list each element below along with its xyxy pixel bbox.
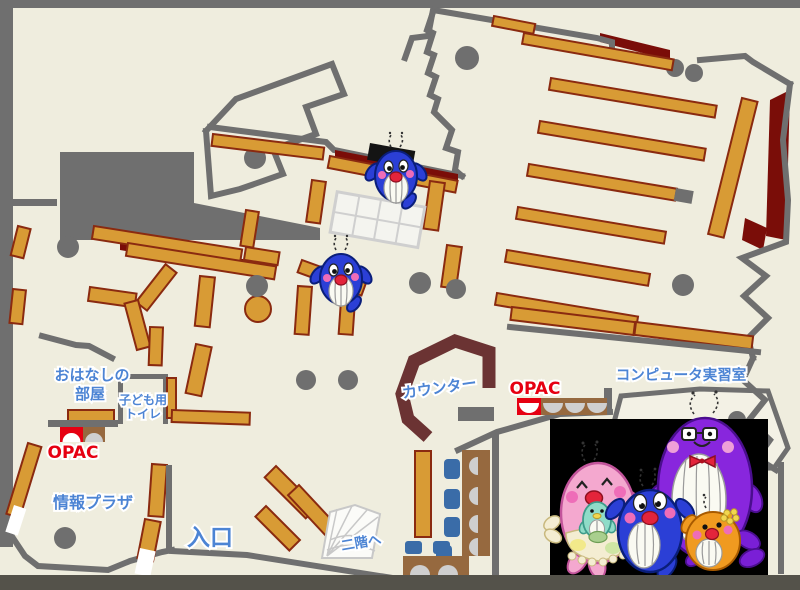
bookshelf (149, 327, 163, 365)
pillar (455, 46, 479, 70)
computer-room-label: コンピュータ実習室 (616, 366, 747, 384)
mascot-panel (541, 390, 768, 581)
pillar (685, 64, 703, 82)
entrance-label: 入口 (187, 525, 233, 551)
bookshelf (415, 451, 431, 537)
bookshelf (172, 410, 250, 425)
entrance-area (166, 465, 172, 553)
return-box (458, 407, 494, 421)
chair (433, 541, 450, 554)
chair (444, 459, 460, 479)
bottom-border (0, 575, 800, 590)
opac-station-left (60, 427, 105, 442)
pillar (296, 370, 316, 390)
info-plaza-label: 情報プラザ (53, 493, 133, 512)
chair (405, 541, 422, 554)
kids-toilet-label: 子ども用 (119, 393, 167, 407)
pillar (246, 275, 268, 297)
opac-label: OPAC (510, 379, 561, 399)
opac-label: OPAC (48, 443, 99, 463)
bookshelf (9, 289, 25, 324)
pillar (338, 370, 358, 390)
bookshelf (148, 464, 167, 517)
opac-station-center (517, 398, 607, 415)
pillar (672, 274, 694, 296)
library-floor-map: おはなしの 部屋 子ども用 トイレ OPAC 情報プラザ 入口 カウンター OP… (0, 0, 800, 590)
pillar (54, 527, 76, 549)
bookshelf (295, 286, 312, 335)
chair (444, 489, 460, 509)
chair (444, 517, 460, 537)
storytelling-room-label: おはなしの (54, 366, 129, 384)
round-table (245, 296, 271, 322)
kids-toilet-label: トイレ (125, 407, 161, 421)
pillar (409, 272, 431, 294)
pillar (57, 236, 79, 258)
storytelling-room-label: 部屋 (75, 385, 105, 403)
pillar (446, 279, 466, 299)
